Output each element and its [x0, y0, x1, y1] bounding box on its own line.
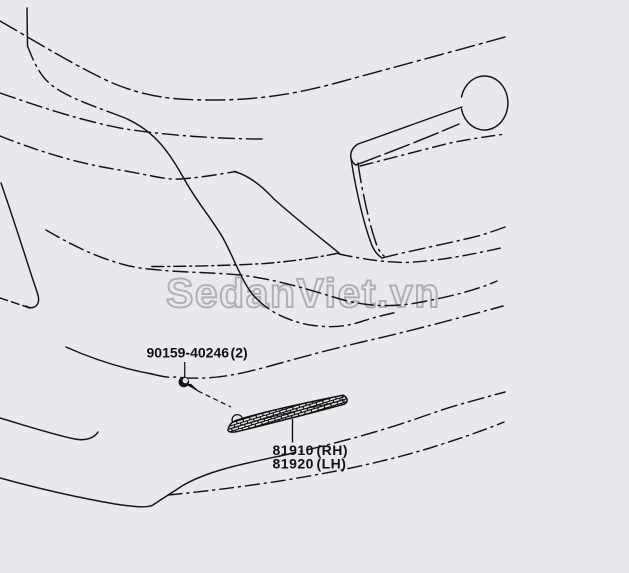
- svg-text:81920(LH): 81920(LH): [273, 456, 347, 472]
- svg-text:90159-40246(2): 90159-40246(2): [147, 345, 248, 361]
- svg-text:SedanViet.vn: SedanViet.vn: [166, 270, 441, 316]
